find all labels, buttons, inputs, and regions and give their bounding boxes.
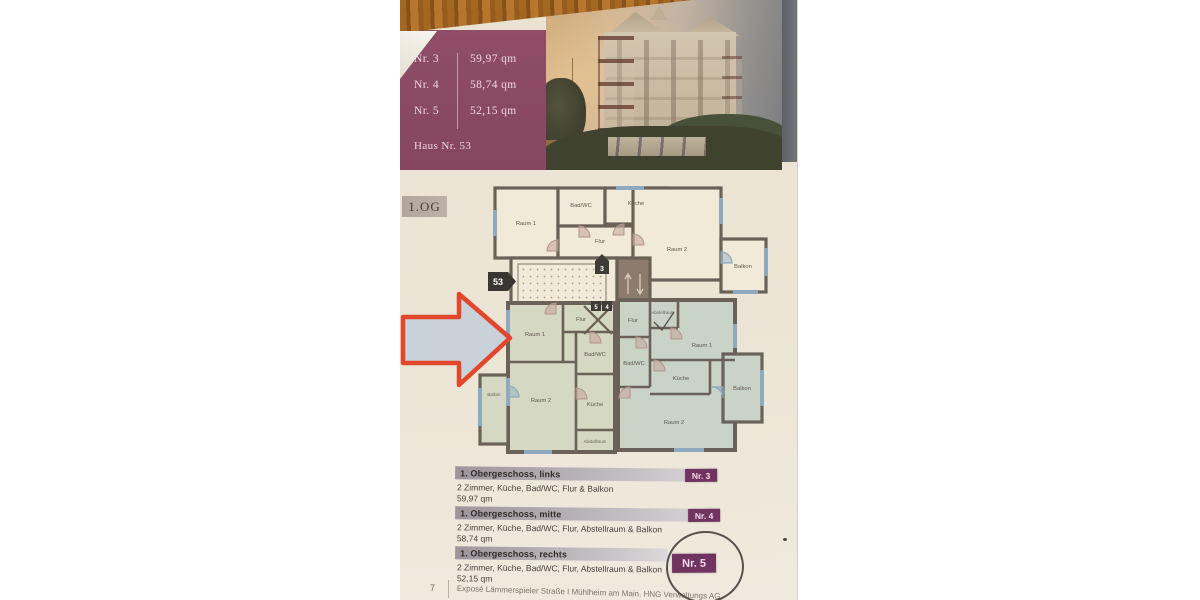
room-label: Raum 2 (664, 420, 684, 426)
room-label: Küche (628, 201, 644, 207)
unit-number: Nr. 4 (414, 79, 454, 91)
unit-number: Nr. 3 (414, 53, 454, 65)
room-label: Abstellraum (584, 439, 607, 444)
unit-number-badge: Nr. 4 (688, 509, 720, 522)
photographed-expose-page: Nr. 3 59,97 qm Nr. 4 58,74 qm Nr. 5 52,1… (0, 0, 1200, 600)
room-label: Flur (628, 318, 638, 324)
unit-area: 59,97 qm (454, 53, 517, 65)
staircase (518, 264, 606, 302)
unit-row: Nr. 4 58,74 qm (414, 79, 517, 91)
apartment-right (618, 300, 762, 450)
unit-row: Nr. 5 52,15 qm (414, 105, 517, 117)
listing-title-bar: 1. Obergeschoss, rechts (455, 546, 668, 561)
room-label: Balkon (733, 386, 751, 392)
listing-area: 52,15 qm (457, 573, 493, 583)
room-label: Küche (587, 402, 603, 408)
listing-title-bar: 1. Obergeschoss, mitte (455, 506, 720, 522)
unit-area: 52,15 qm (454, 105, 517, 117)
entrance-badge-text: 3 (600, 266, 604, 273)
listing-area: 59,97 qm (457, 493, 493, 503)
header-divider-line (457, 53, 458, 129)
unit-number: Nr. 5 (414, 105, 454, 117)
listing-rooms: 2 Zimmer, Küche, Bad/WC, Flur, Abstellra… (457, 562, 662, 574)
graffiti-wall (608, 137, 706, 156)
building-photo (546, 0, 782, 170)
unit-row: Nr. 3 59,97 qm (414, 53, 517, 65)
room-label: Bad/WC (570, 203, 592, 209)
document-page: Nr. 3 59,97 qm Nr. 4 58,74 qm Nr. 5 52,1… (400, 0, 798, 600)
room-label: Bad/WC (623, 361, 645, 367)
room-label: Bad/WC (584, 352, 606, 358)
header-unit-panel: Nr. 3 59,97 qm Nr. 4 58,74 qm Nr. 5 52,1… (400, 30, 546, 170)
arrow-shape (403, 294, 510, 385)
room-label: Raum 1 (692, 343, 712, 349)
listing-title-bar: 1. Obergeschoss, links (455, 466, 718, 482)
footer-divider (448, 580, 449, 598)
red-arrow-annotation (400, 290, 515, 395)
room-label: Flur (595, 239, 605, 245)
room-label: Balkon (734, 264, 752, 270)
floor-plan: 53 3 5 4 Raum 1 Bad/WC Küche Flur Raum 2… (478, 182, 770, 464)
ink-speck (783, 538, 787, 541)
listing-rooms: 2 Zimmer, Küche, Bad/WC, Flur, Abstellra… (457, 522, 662, 534)
building-dormer (650, 6, 668, 20)
listing-title: 1. Obergeschoss, links (460, 468, 560, 479)
room-label: Raum 2 (667, 247, 687, 253)
listing-rooms: 2 Zimmer, Küche, Bad/WC, Flur & Balkon (457, 482, 613, 494)
unit-area: 58,74 qm (454, 79, 517, 91)
room-label: Raum 1 (516, 221, 536, 227)
listing-row: 1. Obergeschoss, mitte Nr. 4 2 Zimmer, K… (455, 506, 785, 545)
listing-row: 1. Obergeschoss, links Nr. 3 2 Zimmer, K… (455, 466, 785, 505)
listing-title: 1. Obergeschoss, mitte (460, 508, 561, 519)
room-label: Flur (576, 317, 586, 323)
house-number-label: Haus Nr. 53 (414, 140, 471, 152)
building-balconies (598, 36, 634, 132)
room-label: Abstellraum (652, 310, 675, 315)
room-label: Raum 2 (531, 398, 551, 404)
floor-level-label: 1.OG (402, 196, 447, 217)
unit-number-badge: Nr. 3 (685, 469, 717, 482)
house-number-badge-text: 53 (493, 277, 503, 287)
room-label: Raum 1 (525, 332, 545, 338)
room-label: Küche (673, 376, 689, 382)
page-number: 7 (430, 583, 435, 593)
listing-area: 58,74 qm (457, 533, 493, 543)
photo-shadow-edge (782, 0, 797, 162)
listing-title: 1. Obergeschoss, rechts (460, 548, 567, 559)
